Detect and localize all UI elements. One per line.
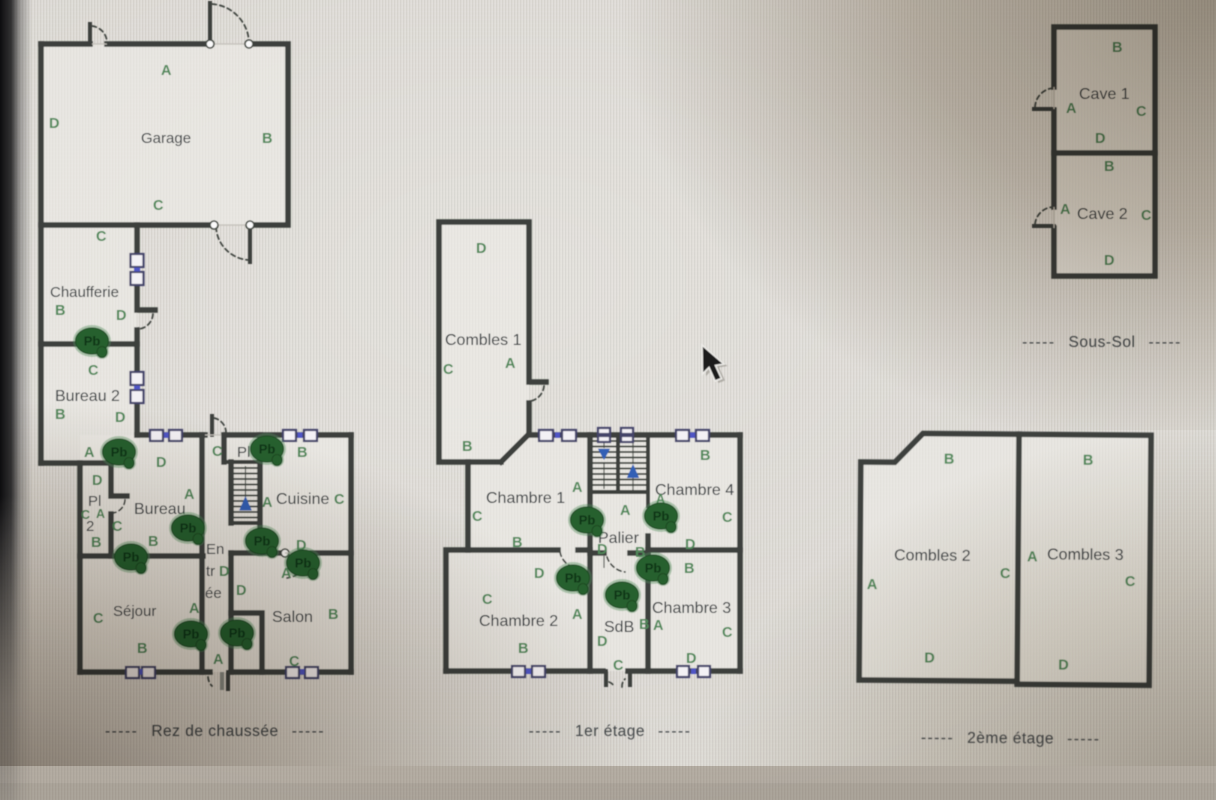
svg-text:C: C [153, 198, 164, 214]
svg-text:B: B [262, 131, 272, 147]
svg-text:B: B [55, 303, 65, 319]
svg-text:C: C [443, 362, 454, 378]
svg-text:D: D [685, 537, 695, 553]
svg-text:Pb: Pb [84, 334, 101, 349]
svg-text:Garage: Garage [141, 130, 191, 147]
svg-text:Chaufferie: Chaufferie [50, 284, 119, 301]
svg-text:B: B [684, 561, 694, 577]
svg-text:D: D [476, 241, 486, 257]
svg-text:C: C [96, 229, 107, 245]
svg-text:D: D [116, 308, 126, 324]
svg-text:Combles 1: Combles 1 [445, 332, 522, 349]
svg-text:C: C [88, 363, 99, 379]
svg-text:A: A [505, 356, 516, 372]
svg-text:A: A [161, 63, 172, 79]
svg-text:D: D [686, 651, 696, 667]
svg-text:D: D [49, 116, 59, 132]
